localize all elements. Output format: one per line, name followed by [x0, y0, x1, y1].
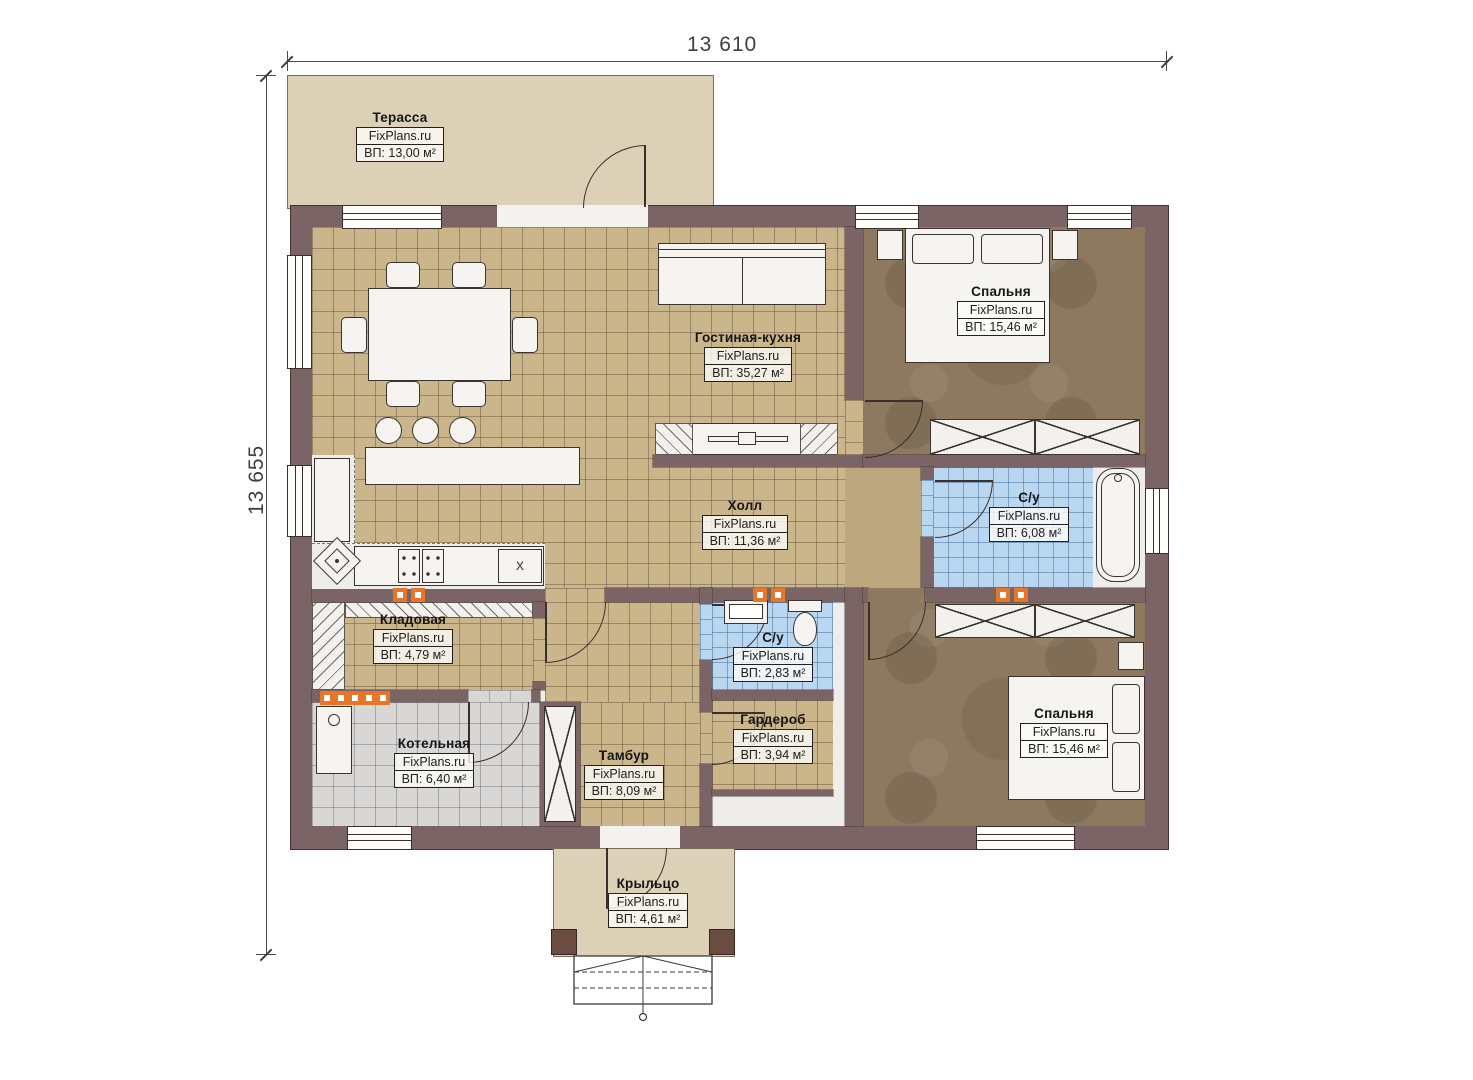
chair — [452, 381, 486, 407]
heating-marker — [376, 691, 390, 705]
window — [287, 255, 312, 369]
porch-column — [709, 929, 735, 955]
wardrobe-cabinet — [935, 604, 1035, 638]
sofa-back — [659, 244, 825, 258]
watermark: FixPlans.ru — [1021, 724, 1107, 741]
nightstand — [1052, 230, 1078, 260]
pantry-shelf — [312, 602, 345, 690]
wall — [921, 537, 933, 588]
tv-stand-shelf — [655, 423, 693, 455]
heating-marker — [393, 588, 407, 602]
chair — [386, 262, 420, 288]
porch-column — [551, 929, 577, 955]
wall — [845, 227, 863, 400]
room-label-terrace: Терасса FixPlans.ruВП: 13,00 м² — [330, 110, 470, 162]
pillow — [912, 234, 974, 264]
window — [287, 465, 312, 537]
dining-table — [368, 288, 511, 381]
door-leaf — [865, 400, 922, 402]
door-threshold — [700, 712, 712, 764]
room-label-tambour: Тамбур FixPlans.ruВП: 8,09 м² — [576, 748, 672, 800]
watermark: FixPlans.ru — [585, 766, 664, 783]
room-label-bedroom-bottom: Спальня FixPlans.ruВП: 15,46 м² — [1008, 706, 1120, 758]
watermark: FixPlans.ru — [705, 348, 791, 365]
boiler-sink — [328, 714, 340, 726]
heating-marker — [362, 691, 376, 705]
heating-marker — [411, 588, 425, 602]
chair — [512, 317, 538, 353]
wall — [533, 602, 545, 618]
sofa-cushion-divider — [742, 257, 743, 304]
dimension-height-label: 13 655 — [245, 445, 269, 515]
wardrobe-cabinet — [1035, 604, 1135, 638]
wall — [863, 455, 1145, 467]
door-threshold — [845, 400, 863, 457]
bathtub-basin — [1101, 473, 1135, 577]
window — [342, 205, 442, 229]
stove — [422, 549, 444, 583]
window — [976, 826, 1075, 850]
door-leaf — [935, 480, 992, 482]
door-leaf — [868, 602, 870, 659]
wall — [700, 588, 712, 604]
tv-stand-shelf — [800, 423, 838, 455]
door-threshold — [868, 588, 925, 602]
wall — [712, 790, 833, 796]
heating-marker — [348, 691, 362, 705]
door-leaf — [545, 602, 547, 662]
heating-marker — [1014, 588, 1028, 602]
watermark: FixPlans.ru — [958, 302, 1044, 319]
porch-steps — [573, 955, 713, 1023]
heating-marker — [753, 588, 767, 602]
heating-marker — [334, 691, 348, 705]
wall — [653, 455, 863, 467]
bar-stool — [449, 417, 476, 444]
wall — [921, 467, 933, 480]
chair — [386, 381, 420, 407]
window — [855, 205, 919, 229]
wall — [532, 690, 540, 702]
watermark: FixPlans.ru — [357, 128, 443, 145]
dimension-tick — [1161, 56, 1174, 69]
room-label-boiler: Котельная FixPlans.ruВП: 6,40 м² — [382, 736, 486, 788]
hall-corridor-floor — [845, 467, 921, 588]
room-label-bathroom-main: С/у FixPlans.ruВП: 6,08 м² — [983, 490, 1075, 542]
floor-plan-canvas: 13 610 13 655 — [0, 0, 1473, 1080]
chair — [452, 262, 486, 288]
sink-drain — [335, 559, 339, 563]
watermark: FixPlans.ru — [734, 648, 813, 665]
dimension-width-label: 13 610 — [687, 33, 757, 57]
dimension-line-top — [287, 61, 1167, 62]
watermark: FixPlans.ru — [734, 730, 813, 747]
bar-stool — [412, 417, 439, 444]
door-leaf — [644, 145, 646, 207]
room-label-bathroom-small: С/у FixPlans.ruВП: 2,83 м² — [731, 630, 815, 682]
window — [347, 826, 412, 850]
window — [1145, 488, 1169, 554]
nightstand — [1118, 642, 1144, 670]
chair — [341, 317, 367, 353]
wall — [533, 682, 545, 690]
dimension-line-left — [266, 75, 267, 955]
watermark: FixPlans.ru — [374, 630, 453, 647]
appliance-mark: x — [516, 557, 524, 575]
nightstand — [877, 230, 903, 260]
terrace-door-opening — [497, 205, 648, 227]
kitchen-counter — [314, 458, 350, 542]
bathtub-faucet — [1114, 474, 1122, 482]
wardrobe-cabinet — [1035, 419, 1140, 455]
room-label-living: Гостиная-кухня FixPlans.ruВП: 35,27 м² — [673, 330, 823, 382]
window — [1067, 205, 1132, 229]
door-threshold — [545, 588, 605, 602]
door-threshold — [468, 690, 532, 702]
shaft-panel — [544, 706, 576, 822]
room-label-porch: Крыльцо FixPlans.ruВП: 4,61 м² — [592, 876, 704, 928]
toilet-tank — [788, 600, 822, 612]
door-threshold — [921, 480, 933, 537]
tv-base — [738, 432, 756, 445]
wall — [700, 764, 712, 826]
sofa — [658, 243, 826, 305]
wall — [700, 660, 712, 712]
watermark: FixPlans.ru — [990, 508, 1069, 525]
heating-marker — [320, 691, 334, 705]
sink-basin — [729, 604, 763, 619]
entry-door-opening — [600, 826, 680, 848]
room-label-bedroom-top: Спальня FixPlans.ruВП: 15,46 м² — [945, 284, 1057, 336]
room-label-pantry: Кладовая FixPlans.ruВП: 4,79 м² — [362, 612, 464, 664]
watermark: FixPlans.ru — [395, 754, 474, 771]
door-threshold — [533, 618, 545, 682]
wall — [845, 588, 863, 826]
bar-counter — [365, 447, 580, 485]
wall — [712, 690, 833, 700]
bar-stool — [375, 417, 402, 444]
wardrobe-cabinet — [930, 419, 1035, 455]
heating-marker — [996, 588, 1010, 602]
watermark: FixPlans.ru — [609, 894, 688, 911]
watermark: FixPlans.ru — [703, 516, 788, 533]
room-label-wardrobe: Гардероб FixPlans.ruВП: 3,94 м² — [724, 712, 822, 764]
heating-marker — [771, 588, 785, 602]
door-threshold — [700, 604, 712, 660]
appliance: x — [498, 549, 542, 583]
wall — [925, 588, 1145, 602]
pillow — [981, 234, 1043, 264]
room-label-hall: Холл FixPlans.ruВП: 11,36 м² — [695, 498, 795, 550]
wall — [312, 588, 545, 602]
stove — [398, 549, 420, 583]
